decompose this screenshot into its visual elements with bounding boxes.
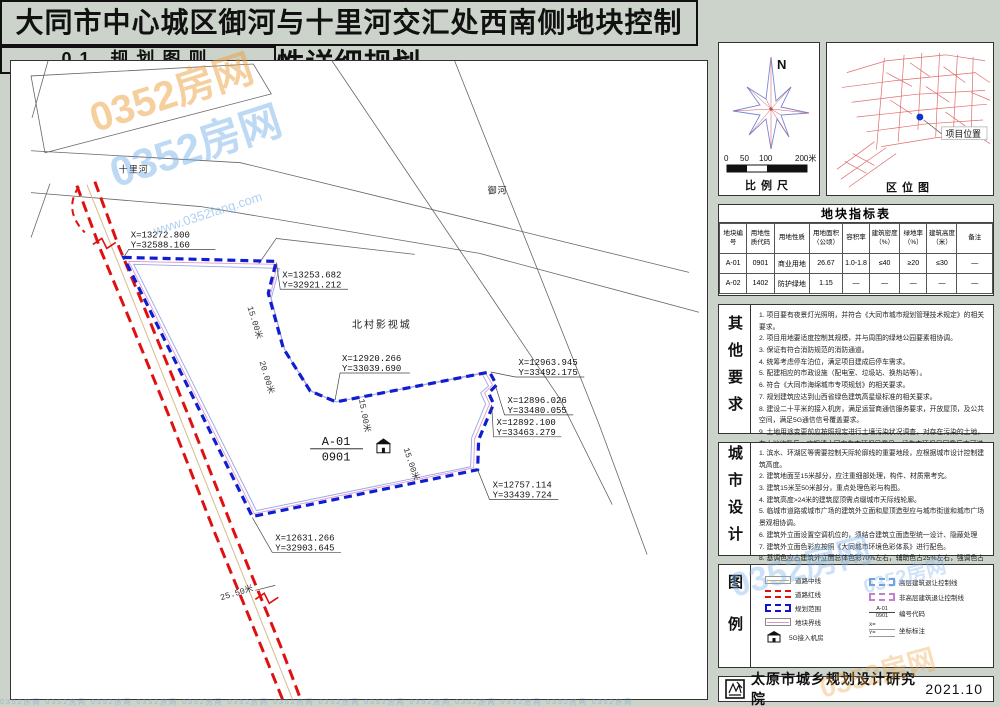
cell: A-01	[720, 254, 747, 274]
legend-item: 规划范围	[765, 603, 821, 613]
clause: 8. 建设二十平米的接入机房，满足运营商通信服务要求，开放屋顶，及公共空间，满足…	[759, 404, 987, 427]
5g-room-legend-icon	[765, 631, 785, 643]
5g-room-icon	[376, 438, 391, 452]
parcel-lines	[31, 61, 699, 554]
clause: 6. 建筑外立面设置空调机位的，须结合建筑立面造型统一设计、隐蔽处理	[759, 530, 987, 542]
cell: 1.15	[810, 274, 843, 294]
project-location-marker	[916, 114, 923, 121]
coord-label: X=13253.682	[282, 270, 341, 280]
clause: 3. 建筑15米至50米部分，重点处理色彩与构图。	[759, 483, 987, 495]
cell: 26.67	[810, 254, 843, 274]
watermark-strip: 0352房网 0352房网 0352房网 0352房网 0352房网 0352房…	[0, 697, 1000, 707]
code-symbol-swatch: A-01 0901	[869, 606, 895, 619]
main-plan-map: X=13272.800 Y=32588.160 X=13253.682 Y=32…	[10, 60, 708, 700]
cell: —	[900, 274, 927, 294]
coord-label: Y=33439.724	[493, 491, 552, 501]
legend-section: 图例 道路中线 道路红线 规划范围 地块界线	[718, 564, 994, 668]
highrise-setback-swatch	[869, 578, 895, 586]
legend-label: 坐标标注	[899, 625, 925, 635]
legend-item: 5G接入机房	[765, 631, 824, 643]
cell: 0901	[747, 254, 774, 274]
table-row: A-02 1402 防护绿地 1.15 — — — — —	[720, 274, 993, 294]
planning-scope-swatch	[765, 604, 791, 612]
institute-logo-icon	[725, 679, 745, 699]
table-title: 地块指标表	[719, 205, 993, 223]
clause: 7. 建筑外立面色彩应按照《大同城市环境色彩体系》进行配色。	[759, 542, 987, 554]
legend-content: 道路中线 道路红线 规划范围 地块界线 5G接入机房	[751, 565, 993, 667]
section-label: 图例	[724, 574, 745, 658]
table-row: A-01 0901 商业用地 26.67 1.0-1.8 ≤40 ≥20 ≤30…	[720, 254, 993, 274]
plan-map-canvas: X=13272.800 Y=32588.160 X=13253.682 Y=32…	[11, 61, 707, 699]
cell: 商业用地	[774, 254, 809, 274]
urban-design-content: 1. 滨水、环湖区等需要控制天际轮廓线的重要地段，应根据城市设计控制建筑高度。 …	[751, 443, 993, 555]
clause: 2. 建筑地面至15米部分，应注重细部处理，构件、材质需考究。	[759, 471, 987, 483]
coord-label: Y=33463.279	[497, 428, 556, 438]
coordinate-callouts: X=13272.800 Y=32588.160 X=13253.682 Y=32…	[131, 230, 578, 553]
legend-label: 道路红线	[795, 589, 821, 599]
section-label: 城市设计	[724, 445, 745, 553]
legend-item: A-01 0901 编号代码	[869, 606, 925, 619]
cell: —	[842, 274, 869, 294]
coord-label: X=12631.266	[275, 533, 334, 543]
cell: ≤40	[870, 254, 900, 274]
plan-sheet: 大同市中心城区御河与十里河交汇处西南侧地块控制性详细规划	[0, 0, 1000, 707]
coord-label: Y=32588.160	[131, 240, 190, 250]
clause: 5. 配建相应的市政设施（配电室、垃圾站、换热站等）。	[759, 368, 987, 380]
section-label-col: 其他要求	[719, 305, 751, 433]
compass-canvas: N 0 50 100 200米	[719, 43, 819, 195]
coord-symbol-swatch: X= Y=	[869, 622, 895, 637]
north-arrow-icon	[733, 57, 809, 149]
col-header: 用地性质代码	[747, 224, 774, 254]
coord-y: Y=	[869, 630, 895, 638]
scale-caption: 比例尺	[719, 177, 819, 193]
clause: 6. 符合《大同市海绵城市专项规划》的相关要求。	[759, 380, 987, 392]
cell: A-02	[720, 274, 747, 294]
dimension-labels: 15.00米 20.00米 15.00米 15.00米 25.50米	[219, 305, 422, 604]
legend-label: 编号代码	[899, 608, 925, 618]
clause: 4. 统筹考虑停车泊位，满足项目建成后停车需求。	[759, 357, 987, 369]
setback-lines	[129, 261, 493, 513]
code-top: A-01	[869, 606, 895, 613]
river-label-shilihe: 十里河	[119, 164, 149, 175]
scale-tick: 200米	[795, 153, 816, 163]
coord-label: Y=32921.212	[282, 280, 341, 290]
cell: 1.0-1.8	[842, 254, 869, 274]
clause: 7. 规划建筑应达到山西省绿色建筑高星级标准的相关要求。	[759, 392, 987, 404]
plot-code: A-01 0901	[310, 435, 363, 465]
compass-scale-box: N 0 50 100 200米 比例尺	[718, 42, 820, 196]
clause: 2. 项目用地要适度控制其规模，并与周围的绿地公园要素相协调。	[759, 333, 987, 345]
cell: 1402	[747, 274, 774, 294]
col-header: 建筑高度（米）	[927, 224, 957, 254]
legend-item: 道路红线	[765, 589, 821, 599]
coord-label: X=12892.100	[497, 418, 556, 428]
location-map-box: 项目位置 区位图	[826, 42, 994, 196]
legend-label: 非高层建筑退让控制线	[899, 592, 964, 602]
location-map-caption: 区位图	[827, 179, 993, 195]
road-redline-swatch	[765, 590, 791, 598]
cell: ≥20	[900, 254, 927, 274]
coord-label: Y=33480.055	[508, 406, 567, 416]
col-header: 绿地率（%）	[900, 224, 927, 254]
road-red-line	[72, 182, 303, 699]
scale-bar: 0 50 100 200米	[724, 153, 816, 172]
col-header: 地块编号	[720, 224, 747, 254]
urban-design-section: 城市设计 1. 滨水、环湖区等需要控制天际轮廓线的重要地段，应根据城市设计控制建…	[718, 442, 994, 556]
dim-label: 15.00米	[245, 305, 266, 341]
scale-tick: 50	[740, 154, 749, 163]
table-header-row: 地块编号 用地性质代码 用地性质 用地面积（公顷） 容积率 建筑密度（%） 绿地…	[720, 224, 993, 254]
cell: —	[957, 254, 993, 274]
planning-boundary	[124, 257, 497, 516]
plot-code-top: A-01	[322, 435, 351, 449]
page-title: 大同市中心城区御河与十里河交汇处西南侧地块控制性详细规划	[0, 0, 698, 46]
section-label: 其他要求	[724, 315, 745, 423]
other-requirements-content: 1. 项目要有夜景灯光照明，并符合《大同市城市规划管理技术规定》的相关要求。 2…	[751, 305, 993, 433]
legend-label: 高层建筑退让控制线	[899, 577, 958, 587]
non-highrise-setback-swatch	[869, 593, 895, 601]
code-bottom: 0901	[869, 613, 895, 619]
clause: 1. 滨水、环湖区等需要控制天际轮廓线的重要地段，应根据城市设计控制建筑高度。	[759, 448, 987, 471]
other-requirements-section: 其他要求 1. 项目要有夜景灯光照明，并符合《大同市城市规划管理技术规定》的相关…	[718, 304, 994, 434]
cell: —	[870, 274, 900, 294]
road-centerline-swatch	[765, 576, 791, 584]
dim-label: 15.00米	[401, 446, 422, 482]
col-header: 建筑密度（%）	[870, 224, 900, 254]
coord-label: Y=32903.645	[275, 543, 334, 553]
section-label-col: 城市设计	[719, 443, 751, 555]
cell: ≤30	[927, 254, 957, 274]
coord-label: Y=33492.175	[519, 368, 578, 378]
coord-label: X=12920.266	[342, 354, 401, 364]
legend-label: 5G接入机房	[789, 632, 824, 642]
legend-item: 地块界线	[765, 617, 821, 627]
clause: 5. 临城市道路或城市广场的建筑外立面和屋顶造型应与城市街道和城市广场景观相协调…	[759, 506, 987, 529]
scale-tick: 100	[759, 154, 773, 163]
coord-label: X=13272.800	[131, 230, 190, 240]
location-map-canvas: 项目位置	[827, 43, 993, 195]
col-header: 用地面积（公顷）	[810, 224, 843, 254]
legend-item: 非高层建筑退让控制线	[869, 592, 964, 602]
legend-item: 高层建筑退让控制线	[869, 577, 958, 587]
col-header: 容积率	[842, 224, 869, 254]
sheet-date: 2021.10	[925, 681, 983, 697]
river-label-yuhe: 御河	[488, 185, 508, 196]
north-label: N	[777, 57, 786, 72]
clause: 3. 保证有符合消防规范的消防通道。	[759, 345, 987, 357]
plot-code-bottom: 0901	[322, 451, 351, 465]
indicator-table: 地块编号 用地性质代码 用地性质 用地面积（公顷） 容积率 建筑密度（%） 绿地…	[719, 223, 993, 294]
coord-label: X=12963.945	[519, 358, 578, 368]
plot-boundary-swatch	[765, 618, 791, 626]
cell: —	[957, 274, 993, 294]
col-header: 备注	[957, 224, 993, 254]
site-label-film-city: 北村影视城	[352, 318, 412, 331]
dim-label: 20.00米	[256, 359, 277, 395]
legend-item: X= Y= 坐标标注	[869, 622, 925, 637]
plot-indicator-table: 地块指标表 地块编号 用地性质代码 用地性质 用地面积（公顷） 容积率 建筑密度…	[718, 204, 994, 296]
cell: —	[927, 274, 957, 294]
col-header: 用地性质	[774, 224, 809, 254]
legend-label: 规划范围	[795, 603, 821, 613]
legend-label: 道路中线	[795, 575, 821, 585]
cell: 防护绿地	[774, 274, 809, 294]
city-road-network	[837, 53, 990, 187]
scale-tick: 0	[724, 154, 729, 163]
section-label-col: 图例	[719, 565, 751, 667]
dim-label: 15.00米	[356, 398, 373, 434]
coord-label: X=12757.114	[493, 481, 552, 491]
project-location-label: 项目位置	[946, 128, 982, 139]
clause: 1. 项目要有夜景灯光照明，并符合《大同市城市规划管理技术规定》的相关要求。	[759, 310, 987, 333]
clause: 4. 建筑高度>24米的建筑屋顶需点缀城市天际线轮廓。	[759, 495, 987, 507]
legend-item: 道路中线	[765, 575, 821, 585]
legend-label: 地块界线	[795, 617, 821, 627]
coord-label: X=12896.026	[508, 396, 567, 406]
coord-label: Y=33039.690	[342, 364, 401, 374]
